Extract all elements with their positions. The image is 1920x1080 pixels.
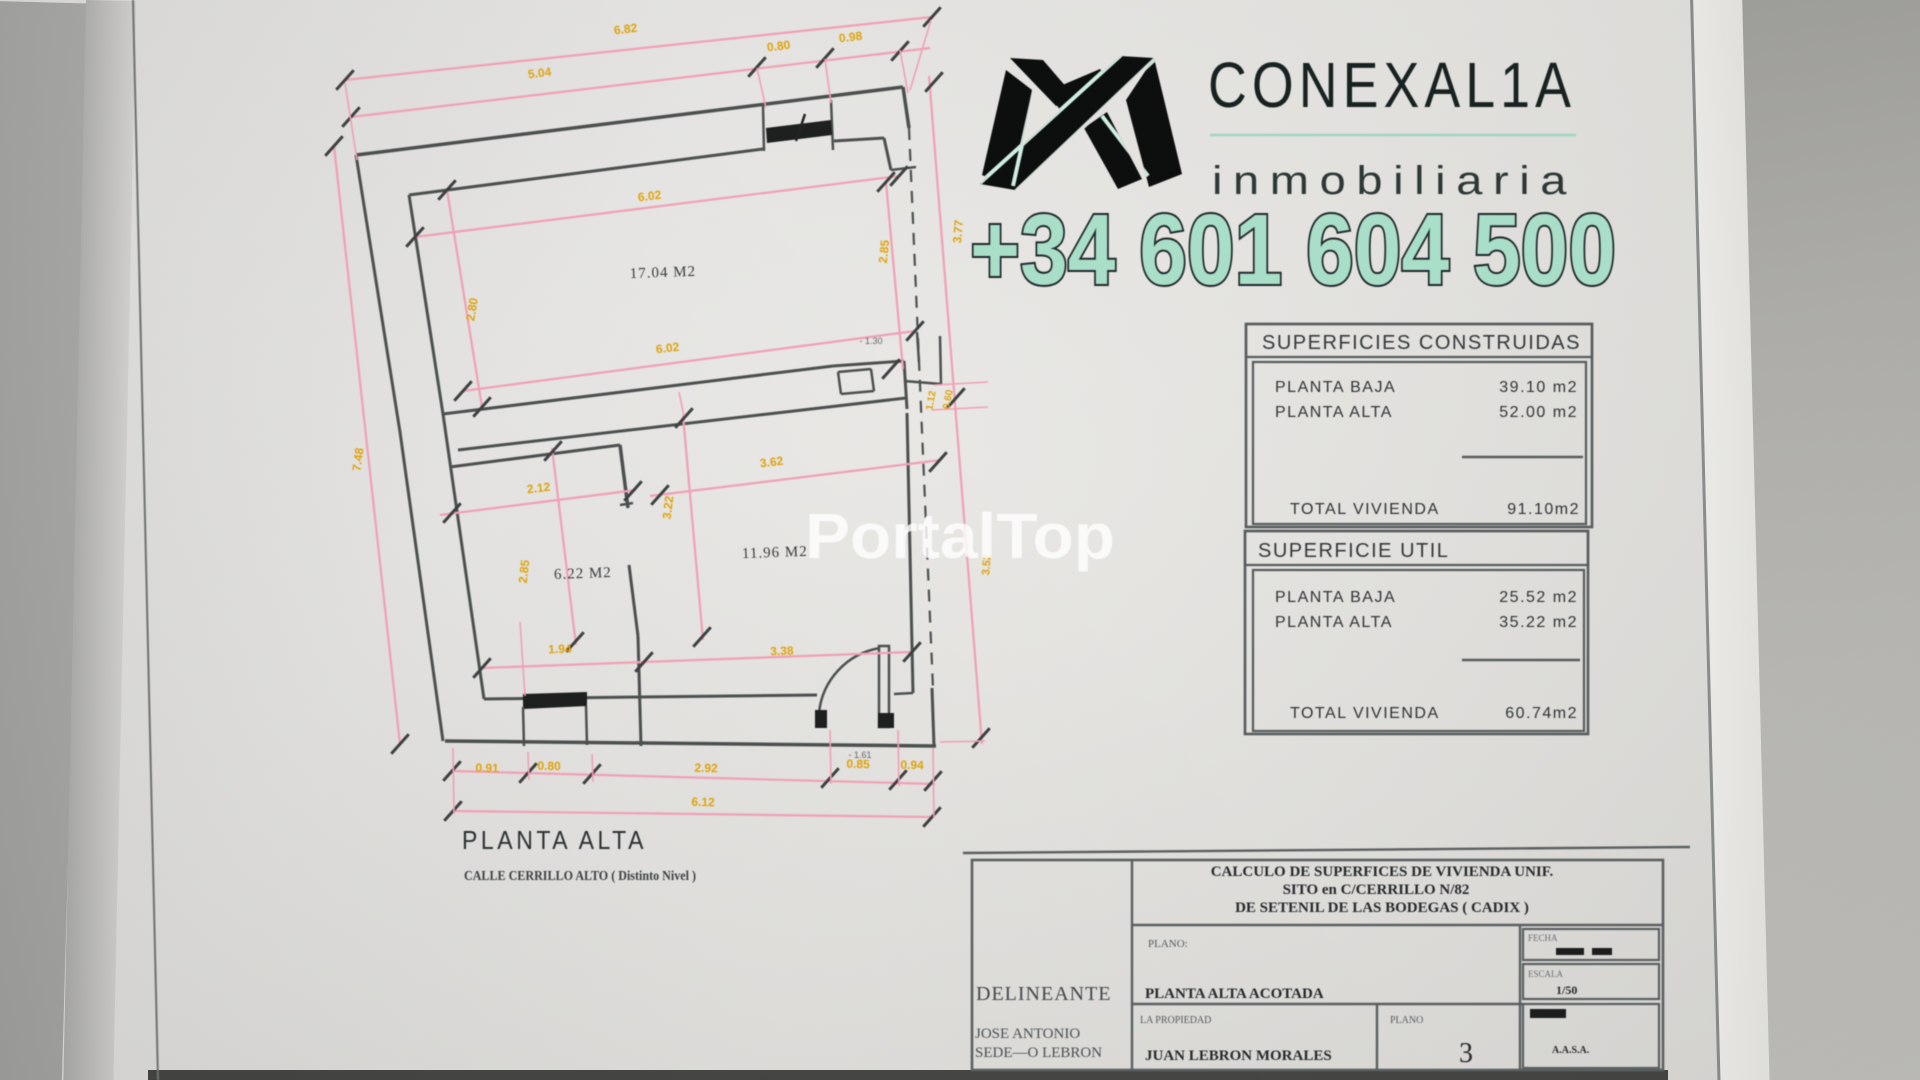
- svg-text:PLANTA ALTA: PLANTA ALTA: [462, 825, 647, 855]
- svg-text:52.00 m2: 52.00 m2: [1499, 404, 1578, 421]
- svg-text:- 1.61: - 1.61: [848, 750, 871, 760]
- svg-text:0.91: 0.91: [475, 761, 499, 775]
- svg-text:91.10m2: 91.10m2: [1507, 501, 1580, 518]
- svg-text:PLANTA ALTA ACOTADA: PLANTA ALTA ACOTADA: [1145, 986, 1324, 1002]
- svg-text:2.12: 2.12: [526, 480, 551, 497]
- svg-text:2.80: 2.80: [463, 296, 481, 322]
- svg-text:JOSE ANTONIO: JOSE ANTONIO: [975, 1026, 1080, 1042]
- svg-text:PortalTop: PortalTop: [805, 500, 1115, 572]
- svg-text:2.85: 2.85: [876, 239, 892, 264]
- svg-text:3: 3: [1459, 1038, 1473, 1069]
- svg-text:3.38: 3.38: [770, 644, 794, 659]
- svg-text:0.80: 0.80: [766, 38, 791, 55]
- svg-text:+34 601 604 500: +34 601 604 500: [970, 194, 1616, 306]
- svg-text:PLANO:: PLANO:: [1148, 938, 1188, 950]
- svg-text:SEDE—O LEBRON: SEDE—O LEBRON: [975, 1045, 1102, 1061]
- svg-text:CONEXAL1A: CONEXAL1A: [1208, 49, 1576, 121]
- svg-text:3.77: 3.77: [950, 219, 966, 244]
- svg-text:6.02: 6.02: [637, 188, 662, 205]
- svg-text:SITO en C/CERRILLO N/82: SITO en C/CERRILLO N/82: [1283, 882, 1470, 898]
- svg-text:SUPERFICIES CONSTRUIDAS: SUPERFICIES CONSTRUIDAS: [1262, 332, 1581, 354]
- svg-text:PLANTA ALTA: PLANTA ALTA: [1275, 614, 1393, 631]
- svg-text:DE SETENIL DE LAS BODEGAS: DE SETENIL DE LAS BODEGAS ( CADIX ): [1235, 900, 1529, 916]
- svg-text:7.48: 7.48: [349, 447, 366, 472]
- svg-text:3.22: 3.22: [660, 495, 677, 520]
- svg-text:6.22 M2: 6.22 M2: [554, 565, 612, 583]
- svg-text:5.04: 5.04: [527, 65, 552, 82]
- svg-text:0.80: 0.80: [537, 759, 561, 773]
- svg-text:- 1.30: - 1.30: [859, 336, 882, 346]
- svg-text:1.12: 1.12: [924, 390, 938, 412]
- svg-text:SUPERFICIE UTIL: SUPERFICIE UTIL: [1258, 540, 1449, 562]
- svg-text:6.12: 6.12: [691, 795, 715, 809]
- svg-text:CALLE CERRILLO ALTO ( Distinto: CALLE CERRILLO ALTO ( Distinto Nivel ): [464, 868, 696, 883]
- svg-text:LA PROPIEDAD: LA PROPIEDAD: [1140, 1015, 1211, 1026]
- svg-text:PLANTA BAJA: PLANTA BAJA: [1275, 379, 1396, 396]
- svg-text:1.94: 1.94: [548, 642, 572, 657]
- svg-text:2.92: 2.92: [694, 761, 718, 775]
- svg-text:FECHA: FECHA: [1528, 933, 1558, 943]
- svg-text:3.62: 3.62: [759, 454, 784, 471]
- svg-text:PLANO: PLANO: [1390, 1015, 1423, 1026]
- svg-text:6.02: 6.02: [655, 340, 680, 357]
- svg-text:PLANTA ALTA: PLANTA ALTA: [1275, 404, 1393, 421]
- svg-text:11.96 M2: 11.96 M2: [742, 544, 808, 562]
- svg-text:25.52 m2: 25.52 m2: [1499, 589, 1578, 606]
- svg-text:39.10 m2: 39.10 m2: [1499, 379, 1578, 396]
- svg-text:JUAN LEBRON MORALES: JUAN LEBRON MORALES: [1145, 1048, 1332, 1064]
- svg-text:CALCULO DE SUPERFICES DE V: CALCULO DE SUPERFICES DE VIVIENDA UNIF.: [1211, 864, 1554, 880]
- svg-text:0.98: 0.98: [838, 29, 863, 46]
- svg-text:A.A.S.A.: A.A.S.A.: [1552, 1045, 1590, 1056]
- svg-text:0.94: 0.94: [900, 758, 924, 772]
- svg-text:DELINEANTE: DELINEANTE: [976, 983, 1112, 1005]
- svg-text:TOTAL VIVIENDA: TOTAL VIVIENDA: [1290, 501, 1440, 518]
- svg-text:ESCALA: ESCALA: [1528, 969, 1564, 979]
- svg-text:60.74m2: 60.74m2: [1505, 705, 1578, 722]
- svg-text:PLANTA BAJA: PLANTA BAJA: [1275, 589, 1396, 606]
- svg-text:6.82: 6.82: [613, 21, 638, 38]
- svg-text:2.85: 2.85: [516, 559, 533, 584]
- svg-text:35.22 m2: 35.22 m2: [1499, 614, 1578, 631]
- svg-text:17.04 M2: 17.04 M2: [629, 264, 696, 282]
- svg-text:TOTAL VIVIENDA: TOTAL VIVIENDA: [1290, 705, 1440, 722]
- svg-text:0.60: 0.60: [941, 389, 955, 411]
- svg-text:1/50: 1/50: [1556, 983, 1577, 997]
